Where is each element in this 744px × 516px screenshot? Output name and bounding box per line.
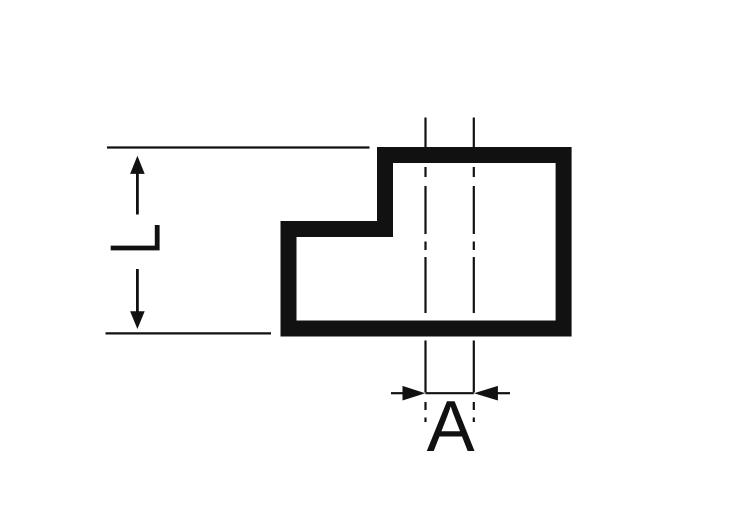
svg-text:A: A: [427, 387, 475, 467]
